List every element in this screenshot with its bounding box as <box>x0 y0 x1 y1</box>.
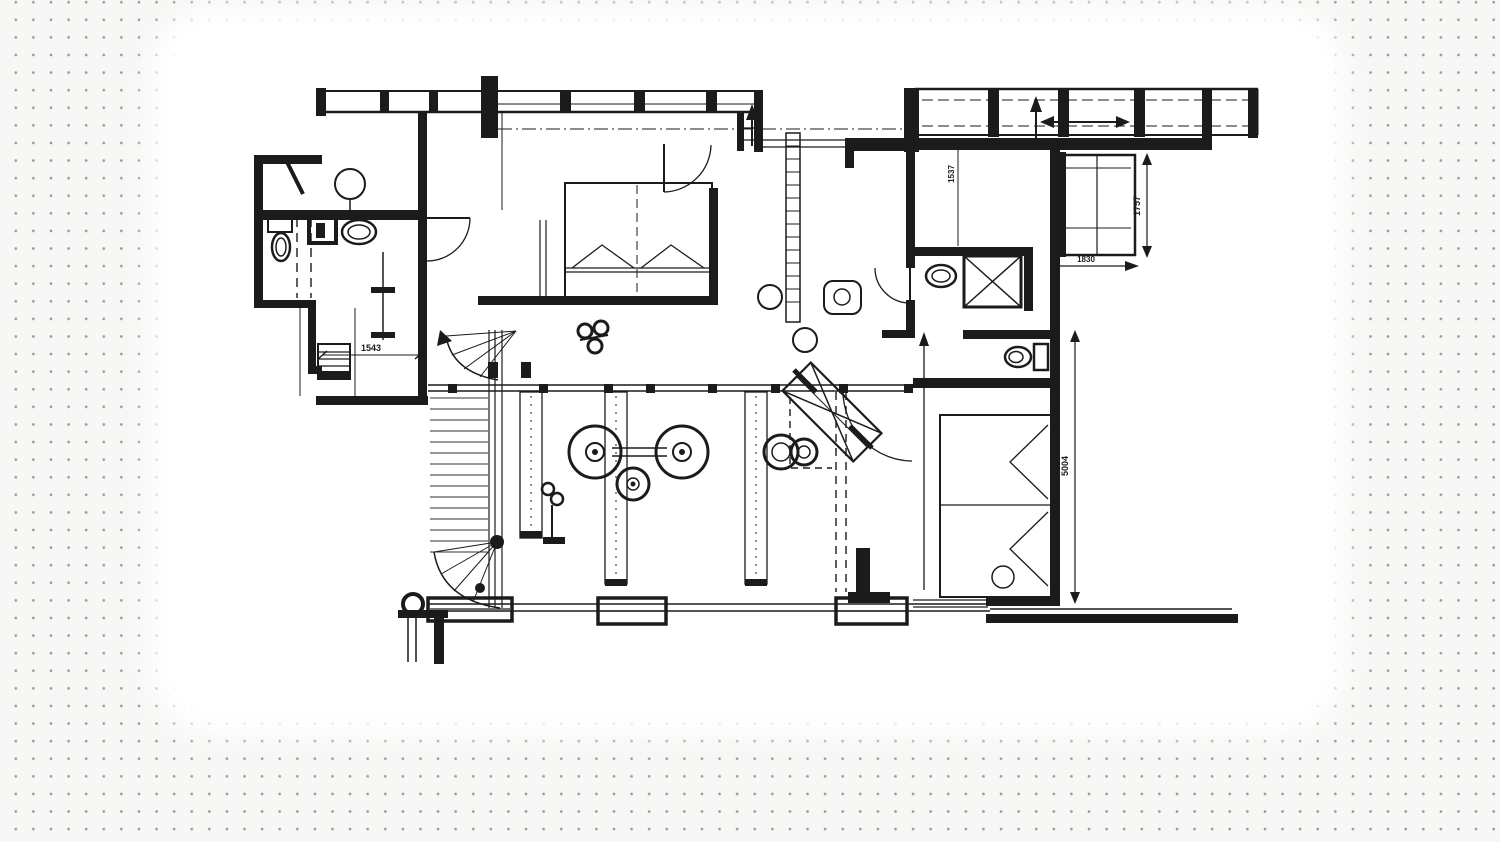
bed-master <box>565 183 712 302</box>
dim-text-5004: 5004 <box>1060 456 1070 476</box>
basin-bath <box>926 265 956 287</box>
shower <box>964 256 1021 307</box>
exterior-walls <box>254 76 1258 664</box>
plant-symbol <box>578 321 608 353</box>
armchair <box>824 281 861 314</box>
radiator-column <box>371 252 395 340</box>
dimension-balcony-width: 1830 <box>1060 255 1139 271</box>
dim-text-1543: 1543 <box>361 343 381 353</box>
duct-shaft <box>309 216 336 243</box>
pilaster-strips <box>520 392 767 586</box>
dim-text-1757: 1757 <box>1132 196 1142 216</box>
dimension-right-wing: 5004 <box>1060 330 1080 604</box>
bed-guest <box>940 415 1052 597</box>
staircase <box>430 330 516 608</box>
survey-marker <box>542 483 565 544</box>
dimension-entry-depth: 1537 <box>947 165 956 183</box>
wardrobe <box>786 133 800 322</box>
bath-arrow <box>1030 96 1042 140</box>
washer-radiator <box>318 344 350 379</box>
column-markers <box>569 426 708 500</box>
dimension-left-wing: 1543 <box>318 343 424 359</box>
floor-plan: 1757 1830 5004 1537 1543 <box>0 0 1500 842</box>
toilet-right <box>1005 344 1048 370</box>
dim-text-1537: 1537 <box>947 165 956 183</box>
canvas: 1757 1830 5004 1537 1543 <box>0 0 1500 842</box>
dim-text-1830: 1830 <box>1077 255 1095 264</box>
basin-left <box>342 220 376 244</box>
toilet-left <box>268 219 292 261</box>
corridor-circles <box>758 285 817 352</box>
bedroom-arrow <box>919 332 929 590</box>
